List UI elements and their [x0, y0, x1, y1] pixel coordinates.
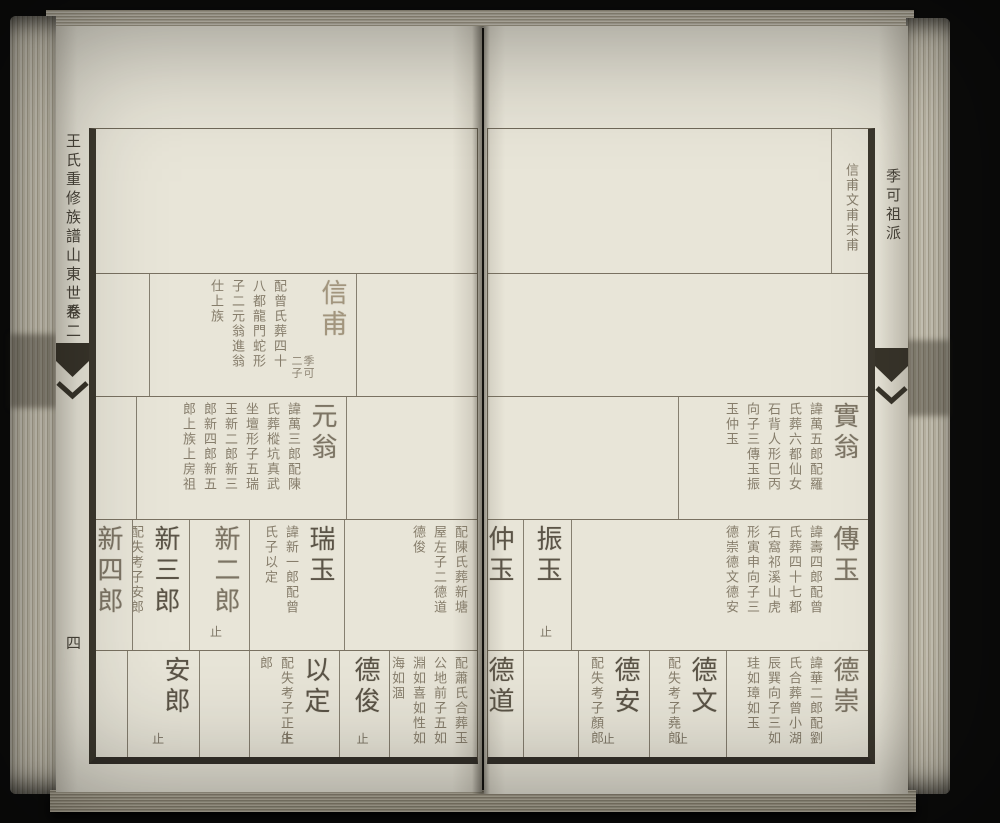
- left-page: 王氏重修族譜山東世系 卷二 四 信甫季可二子配曾氏葬四十八都龍門蛇形子二元翁進翁…: [56, 26, 482, 792]
- generation-row: 配陳氏葬新塘屋左子二德道德俊瑞玉諱新一郎配曾氏子以定新二郎止新三郎配失考子安郎新…: [96, 519, 477, 650]
- lineage-stop-marker: 止: [152, 730, 164, 747]
- empty-cell: [199, 651, 249, 757]
- person-entry: 元翁諱萬三郎配陳氏葬樅坑真武坐壇形子五瑞玉新二郎新三郎新四郎新五郎上族上房祖: [136, 397, 347, 519]
- person-entry: 德道: [480, 651, 523, 757]
- person-name: 傳玉: [826, 525, 862, 645]
- generation-row: 元翁諱萬三郎配陳氏葬樅坑真武坐壇形子五瑞玉新二郎新三郎新四郎新五郎上族上房祖: [96, 396, 477, 519]
- person-entry: 瑞玉諱新一郎配曾氏子以定: [249, 520, 344, 650]
- lineage-stop-marker: 止: [210, 623, 222, 640]
- empty-cell: [523, 651, 578, 757]
- person-entry: 信甫季可二子配曾氏葬四十八都龍門蛇形子二元翁進翁仕上族: [149, 274, 357, 396]
- left-page-frame: 信甫季可二子配曾氏葬四十八都龍門蛇形子二元翁進翁仕上族元翁諱萬三郎配陳氏葬樅坑真…: [89, 128, 478, 764]
- empty-cell: [347, 397, 477, 519]
- person-name: 新四郎: [94, 525, 126, 645]
- person-name: 實翁: [826, 402, 862, 514]
- empty-cell: [357, 274, 477, 396]
- person-name: 新三郎: [147, 525, 183, 645]
- person-entry: 德文配失考子堯郎止: [649, 651, 726, 757]
- book-photograph: 王氏重修族譜山東世系 卷二 四 信甫季可二子配曾氏葬四十八都龍門蛇形子二元翁進翁…: [0, 0, 1000, 823]
- person-name: 德崇: [826, 656, 862, 752]
- person-annotation: 季可二子: [290, 355, 314, 387]
- lineage-stop-marker: 止: [603, 730, 615, 747]
- centerfold-strip-left: 王氏重修族譜山東世系 卷二 四: [56, 26, 89, 792]
- person-entry: 德崇諱華二郎配劉氏合葬曾小湖辰巽向子三如珪如璋如玉: [726, 651, 868, 757]
- person-bio: 配曾氏葬四十八都龍門蛇形子二元翁進翁仕上族: [206, 279, 290, 371]
- person-entry: 傳玉諱壽四郎配曾氏葬四十七都石窩祁溪山虎形寅申向子三德崇德文德安: [571, 520, 868, 650]
- branch-label: 季可祖派: [882, 168, 902, 244]
- page-stack-edge-left: [10, 16, 56, 794]
- person-bio: 諱萬三郎配陳氏葬樅坑真武坐壇形子五瑞玉新二郎新三郎新四郎新五郎上族上房祖: [178, 402, 304, 494]
- continuation-text: 配蕭氏合葬玉公地前子五如淵如喜如性如海如涸: [389, 651, 477, 757]
- lineage-stop-marker: 止: [676, 730, 688, 747]
- person-entry: 以定配失考子正生郎止: [249, 651, 339, 757]
- person-entry: 新二郎止: [189, 520, 249, 650]
- person-bio: 諱萬五郎配羅氏葬六都仙女石背人形巳丙向子三傳玉振玉仲玉: [721, 402, 826, 494]
- person-bio: 配陳氏葬新塘屋左子二德道德俊: [408, 525, 471, 617]
- volume-label: 卷二: [62, 304, 82, 342]
- empty-cell: [94, 651, 127, 757]
- generation-row: 傳玉諱壽四郎配曾氏葬四十七都石窩祁溪山虎形寅申向子三德崇德文德安振玉止仲玉: [488, 519, 868, 650]
- person-name: 元翁: [304, 402, 340, 514]
- person-entry: 實翁諱萬五郎配羅氏葬六都仙女石背人形巳丙向子三傳玉振玉仲玉: [678, 397, 868, 519]
- person-entry: 德安配失考子顏郎止: [578, 651, 649, 757]
- fishtail-mark: [56, 343, 89, 401]
- person-bio: 諱華二郎配劉氏合葬曾小湖辰巽向子三如珪如璋如玉: [742, 656, 826, 748]
- person-entry: 仲玉: [480, 520, 523, 650]
- generation-row: 信甫文甫末甫: [488, 129, 868, 273]
- generation-row: 信甫季可二子配曾氏葬四十八都龍門蛇形子二元翁進翁仕上族: [96, 273, 477, 396]
- right-page-frame: 信甫文甫末甫實翁諱萬五郎配羅氏葬六都仙女石背人形巳丙向子三傳玉振玉仲玉傳玉諱壽四…: [487, 128, 875, 764]
- continuation-text: 信甫文甫末甫: [831, 129, 868, 273]
- page-number: 四: [62, 635, 82, 654]
- person-name: 以定: [297, 656, 333, 752]
- person-name: 德道: [481, 656, 517, 752]
- generation-row: [96, 129, 477, 273]
- person-bio: 配失考子安郎: [132, 525, 147, 617]
- continuation-text: 配陳氏葬新塘屋左子二德道德俊: [344, 520, 477, 650]
- generation-row: 德崇諱華二郎配劉氏合葬曾小湖辰巽向子三如珪如璋如玉德文配失考子堯郎止德安配失考子…: [488, 650, 868, 757]
- person-bio: 信甫文甫末甫: [841, 163, 862, 255]
- generation-row: 配蕭氏合葬玉公地前子五如淵如喜如性如海如涸德俊止以定配失考子正生郎止安郎止: [96, 650, 477, 757]
- lineage-stop-marker: 止: [540, 623, 552, 640]
- fishtail-mark: [875, 348, 908, 406]
- person-entry: 新三郎配失考子安郎: [132, 520, 189, 650]
- person-bio: 諱壽四郎配曾氏葬四十七都石窩祁溪山虎形寅申向子三德崇德文德安: [721, 525, 826, 617]
- person-name: 信甫: [314, 279, 350, 391]
- person-entry: 新四郎: [94, 520, 132, 650]
- lineage-stop-marker: 止: [357, 730, 369, 747]
- person-entry: 安郎止: [127, 651, 199, 757]
- page-stack-edge-right: [906, 18, 950, 794]
- right-page: 季可祖派 信甫文甫末甫實翁諱萬五郎配羅氏葬六都仙女石背人形巳丙向子三傳玉振玉仲玉…: [484, 26, 908, 794]
- person-bio: 配蕭氏合葬玉公地前子五如淵如喜如性如海如涸: [389, 656, 471, 748]
- person-entry: 振玉止: [523, 520, 571, 650]
- person-entry: 德俊止: [339, 651, 389, 757]
- person-name: 瑞玉: [302, 525, 338, 645]
- generation-row: 實翁諱萬五郎配羅氏葬六都仙女石背人形巳丙向子三傳玉振玉仲玉: [488, 396, 868, 519]
- person-name: 仲玉: [481, 525, 517, 645]
- person-bio: 諱新一郎配曾氏子以定: [260, 525, 302, 617]
- lineage-stop-marker: 止: [280, 730, 292, 747]
- generation-row: [488, 273, 868, 396]
- centerfold-strip-right: 季可祖派: [875, 26, 908, 794]
- spine-title: 王氏重修族譜山東世系: [62, 133, 82, 323]
- person-name: 德文: [684, 656, 720, 752]
